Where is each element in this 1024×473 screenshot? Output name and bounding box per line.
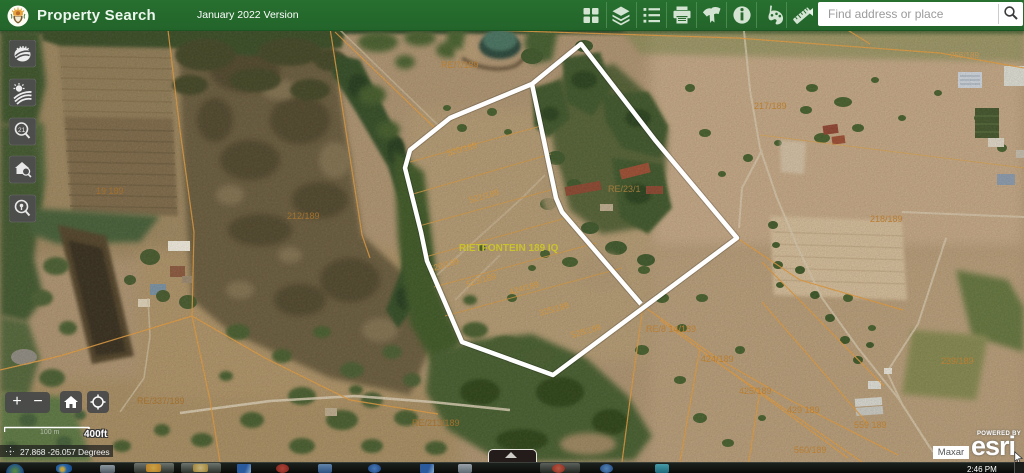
svg-text:21: 21 (18, 127, 26, 134)
svg-text:100 m: 100 m (40, 429, 60, 436)
